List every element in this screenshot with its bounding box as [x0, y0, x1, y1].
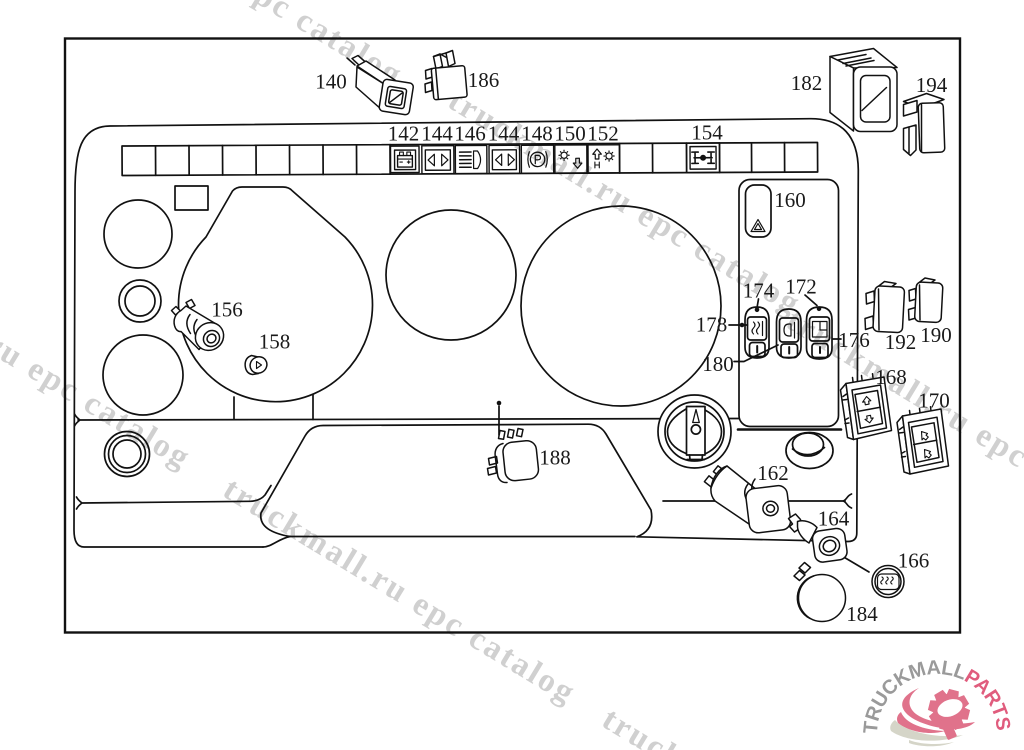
svg-text:188: 188	[539, 446, 571, 470]
svg-text:164: 164	[818, 507, 850, 531]
svg-text:148: 148	[521, 122, 553, 146]
svg-text:144: 144	[421, 122, 453, 146]
svg-text:190: 190	[920, 323, 952, 347]
svg-text:150: 150	[554, 122, 586, 146]
svg-text:160: 160	[774, 188, 806, 212]
svg-text:154: 154	[691, 121, 723, 145]
svg-text:180: 180	[702, 352, 734, 376]
svg-text:186: 186	[468, 68, 500, 92]
svg-text:156: 156	[211, 298, 243, 322]
svg-text:144: 144	[488, 122, 520, 146]
svg-text:168: 168	[875, 365, 907, 389]
svg-text:146: 146	[454, 122, 486, 146]
svg-text:142: 142	[388, 122, 420, 146]
svg-text:184: 184	[846, 602, 878, 626]
svg-text:172: 172	[785, 275, 817, 299]
svg-text:176: 176	[838, 328, 870, 352]
svg-text:174: 174	[743, 279, 775, 303]
svg-text:152: 152	[587, 122, 619, 146]
svg-text:140: 140	[315, 70, 347, 94]
svg-text:162: 162	[757, 461, 789, 485]
svg-text:166: 166	[898, 549, 930, 573]
svg-text:170: 170	[918, 389, 950, 413]
svg-text:158: 158	[259, 330, 291, 354]
svg-text:194: 194	[916, 73, 948, 97]
svg-text:192: 192	[885, 330, 917, 354]
svg-text:182: 182	[791, 71, 823, 95]
svg-text:178: 178	[696, 313, 728, 337]
